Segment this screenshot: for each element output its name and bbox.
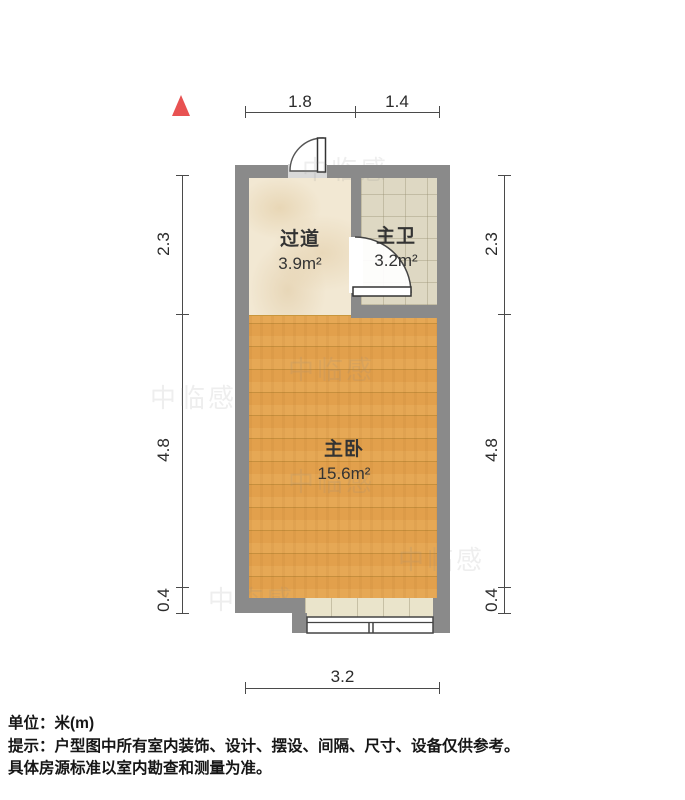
- north-arrow-icon: [172, 95, 190, 116]
- room-hallway-label: 过道 3.9m²: [248, 224, 352, 274]
- watermark: 中临感: [208, 580, 295, 617]
- room-bedroom-area: 15.6m²: [294, 464, 394, 484]
- dim-left-tick-1: [176, 175, 189, 176]
- footer-unit-line: 单位：米(m): [8, 711, 94, 733]
- room-hallway-area: 3.9m²: [248, 254, 352, 274]
- dim-left-tick-2: [176, 314, 189, 315]
- watermark: 中临感: [150, 378, 237, 415]
- dim-top-tick-3: [439, 106, 440, 118]
- dim-top-value-2: 1.4: [355, 92, 439, 112]
- dim-left-value-1: 2.3: [154, 214, 174, 274]
- window-frame: [307, 617, 433, 633]
- room-bathroom-area: 3.2m²: [352, 251, 440, 271]
- wall-bay-right: [433, 598, 450, 633]
- dim-left-value-2: 4.8: [154, 420, 174, 480]
- dim-left-tick-3: [176, 587, 189, 588]
- room-bathroom-label: 主卫 3.2m²: [352, 221, 440, 271]
- watermark: 中临感: [302, 150, 389, 187]
- dim-right-tick-2: [498, 314, 511, 315]
- dim-bottom-value-1: 3.2: [245, 667, 440, 687]
- dim-bottom-line: [245, 688, 440, 689]
- dim-right-value-1: 2.3: [482, 214, 502, 274]
- room-bathroom-name: 主卫: [352, 221, 440, 248]
- footer-tip-line: 提示：户型图中所有室内装饰、设计、摆设、间隔、尺寸、设备仅供参考。: [8, 734, 520, 756]
- dim-right-value-3: 0.4: [482, 570, 502, 630]
- room-bedroom-name: 主卧: [294, 434, 394, 461]
- dim-right-tick-1: [498, 175, 511, 176]
- dim-right-line: [504, 175, 505, 614]
- bay-window-sill: [305, 598, 433, 618]
- footer-tip-line-2: 具体房源标准以室内勘查和测量为准。: [8, 756, 272, 778]
- room-hallway-name: 过道: [248, 224, 352, 251]
- watermark: 中临感: [288, 350, 375, 387]
- dim-right-value-2: 4.8: [482, 420, 502, 480]
- dim-left-value-3: 0.4: [154, 570, 174, 630]
- dim-left-tick-4: [176, 613, 189, 614]
- room-bedroom-label: 主卧 15.6m²: [294, 434, 394, 484]
- dim-top-line: [245, 112, 440, 113]
- floorplan-page: 过道 3.9m² 主卫 3.2m² 主卧 15.6m² 1.8 1.4 2.3 …: [0, 0, 685, 800]
- wall-bathroom-bottom: [351, 305, 450, 318]
- watermark: 中临感: [398, 540, 485, 577]
- dim-top-value-1: 1.8: [245, 92, 355, 112]
- wall-left: [235, 165, 249, 613]
